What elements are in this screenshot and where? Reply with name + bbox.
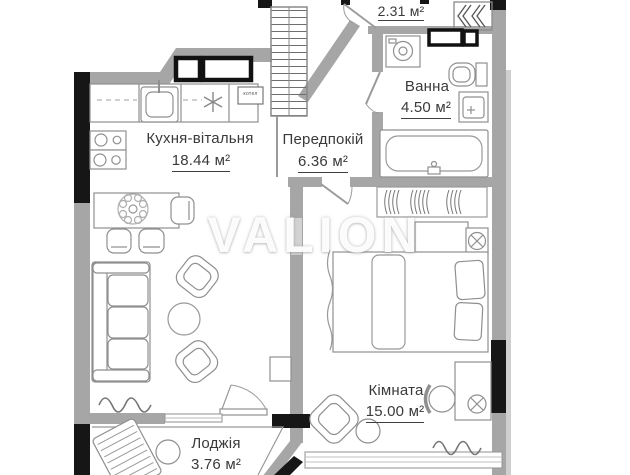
watermark: VALION: [205, 206, 425, 264]
wall-bath-bottom: [350, 177, 506, 187]
desk: [455, 362, 491, 420]
wall-loggia-top: [74, 413, 165, 424]
bath-window-box-2: [464, 31, 477, 45]
bed: [328, 250, 489, 352]
closet-area-label: 2.31 м²: [356, 4, 446, 21]
radiator-living: [99, 398, 151, 412]
bathroom-name-label: Ванна: [377, 79, 477, 96]
washing-machine: [386, 36, 420, 67]
boiler-label: котел: [236, 92, 265, 98]
dining-set: [94, 193, 194, 253]
blanket-edge: [328, 250, 333, 350]
bath-window-box-1: [429, 30, 462, 45]
hallway-name-label: Передпокій: [273, 132, 373, 149]
coffee-table: [168, 303, 200, 335]
balcony-door: [220, 385, 267, 415]
bedroom-door: [321, 184, 352, 204]
floor-plan: 2.31 м² Кухня-вітальня 18.44 м² Передпок…: [0, 0, 630, 475]
bedroom-name-label: Кімната: [346, 383, 446, 400]
bathroom-area-label: 4.50 м²: [376, 100, 476, 119]
kitchen-name-label: Кухня-вітальня: [125, 131, 275, 148]
kitchen-window-box-2: [203, 58, 251, 80]
bedroom-area-label: 15.00 м²: [345, 404, 445, 423]
dining-chair-bottom-1: [107, 229, 131, 253]
armchair-2: [172, 337, 222, 387]
kitchen-area-label: 18.44 м²: [151, 153, 251, 172]
sofa-set: [92, 252, 291, 387]
nightstand-lamp: [466, 228, 488, 254]
wall-right-window-black: [491, 340, 506, 413]
dining-chair-right: [171, 197, 194, 224]
wall-cap-top-1: [258, 0, 272, 8]
sofa: [92, 262, 150, 382]
wall-bath-left-top: [372, 28, 383, 72]
hallway-area-label: 6.36 м²: [273, 154, 373, 173]
kitchen-window-box-1: [176, 58, 200, 80]
loggia-area-label: 3.76 м²: [166, 457, 266, 475]
wall-left-black-upper: [74, 72, 90, 203]
stove: [90, 131, 126, 169]
loggia-name-label: Лоджія: [166, 436, 266, 453]
wall-right-outer-light: [506, 70, 511, 475]
bedroom-side-table: [356, 419, 380, 443]
wall-left-gray: [74, 203, 90, 414]
bedroom-window-band: [305, 452, 502, 468]
stairs-shaft-right: [454, 2, 492, 30]
console-table: [270, 357, 291, 381]
wall-loggia-corner-black: [272, 414, 310, 428]
sunbed: [92, 418, 163, 475]
dining-chair-bottom-2: [139, 229, 164, 253]
bathtub: [380, 130, 488, 177]
